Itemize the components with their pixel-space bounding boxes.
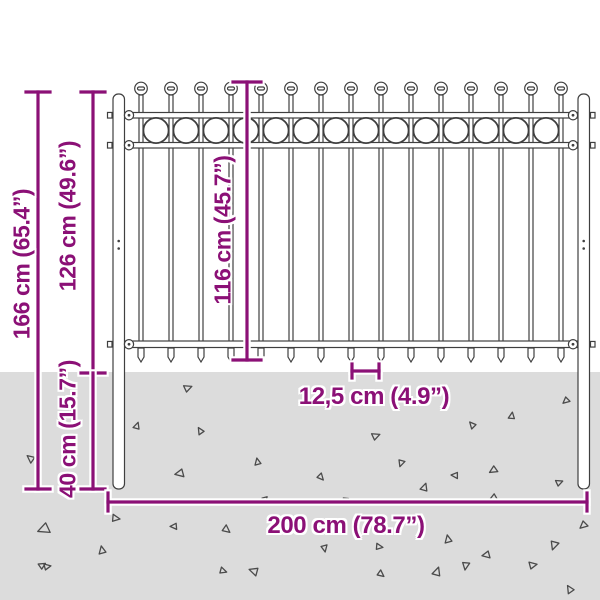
ground-triangle-mark bbox=[443, 535, 453, 546]
ground-triangle-mark bbox=[548, 538, 560, 550]
horizontal-rail bbox=[125, 113, 579, 119]
ground-triangle-mark bbox=[170, 522, 179, 531]
fence-diagram bbox=[0, 0, 600, 600]
ring-ornament bbox=[533, 118, 558, 143]
spear-tip bbox=[468, 348, 474, 362]
ring-ornament bbox=[173, 118, 198, 143]
ground-triangle-mark bbox=[182, 384, 192, 394]
spear-tip bbox=[318, 348, 324, 362]
ground-triangle-mark bbox=[507, 412, 516, 421]
ground-marks bbox=[27, 384, 588, 595]
ground-triangle-mark bbox=[580, 521, 588, 528]
ground-triangle-mark bbox=[37, 562, 45, 569]
bracket-bolt-dot bbox=[128, 343, 131, 346]
bracket-bolt-plate bbox=[591, 341, 596, 347]
ball-finial-band bbox=[558, 87, 565, 90]
spear-tip bbox=[198, 348, 204, 362]
spear-tip bbox=[378, 348, 384, 362]
ground-triangle-mark bbox=[97, 546, 107, 557]
ball-finial-band bbox=[258, 87, 265, 90]
ball-finial-band bbox=[378, 87, 385, 90]
ground-triangle-mark bbox=[370, 432, 380, 442]
spear-tip bbox=[438, 348, 444, 362]
picket-bar bbox=[559, 95, 563, 348]
picket-bar bbox=[319, 95, 323, 348]
picket-bar bbox=[469, 95, 473, 348]
horizontal-rail bbox=[125, 143, 579, 149]
ground-triangle-mark bbox=[431, 567, 443, 579]
spear-tip bbox=[528, 348, 534, 362]
ground-triangle-mark bbox=[320, 543, 329, 552]
dimension-line-picket-spacing bbox=[352, 364, 379, 378]
ground-triangle-mark bbox=[218, 566, 227, 575]
bracket-bolt-plate bbox=[591, 112, 596, 118]
fence-post-right bbox=[578, 94, 590, 489]
bracket-bolt-plate bbox=[108, 112, 113, 118]
dimension-line-width bbox=[108, 493, 587, 511]
dimension-line-below-ground-depth bbox=[81, 373, 105, 489]
spear-tip bbox=[348, 348, 354, 362]
picket-bar bbox=[379, 95, 383, 348]
ring-ornament bbox=[443, 118, 468, 143]
fence bbox=[108, 82, 596, 489]
picket-bar bbox=[409, 95, 413, 348]
dimension-label-below-ground-depth: 40 cm (15.7”) bbox=[55, 360, 82, 498]
ground-triangle-mark bbox=[566, 586, 574, 595]
picket-bar bbox=[499, 95, 503, 348]
ground-triangle-mark bbox=[132, 422, 141, 431]
ball-finial-band bbox=[498, 87, 505, 90]
fence-post-left bbox=[113, 94, 125, 489]
ball-finial-band bbox=[168, 87, 175, 90]
ring-ornament bbox=[473, 118, 498, 143]
picket-bar bbox=[349, 95, 353, 348]
spear-tip bbox=[168, 348, 174, 362]
ground-triangle-mark bbox=[197, 428, 204, 436]
ground-triangle-mark bbox=[374, 542, 383, 551]
ring-ornament bbox=[383, 118, 408, 143]
ring-ornament bbox=[503, 118, 528, 143]
bracket-bolt-dot bbox=[572, 114, 575, 117]
ground-triangle-mark bbox=[317, 473, 323, 480]
spear-tip bbox=[558, 348, 564, 362]
ball-finial-band bbox=[528, 87, 535, 90]
picket-bar bbox=[439, 95, 443, 348]
dimension-label-width: 200 cm (78.7”) bbox=[267, 512, 424, 540]
ground-triangle-mark bbox=[249, 565, 261, 577]
picket-bar bbox=[169, 95, 173, 348]
ground-triangle-mark bbox=[527, 560, 538, 570]
dimension-line-above-ground-height bbox=[81, 92, 105, 373]
horizontal-rail bbox=[125, 341, 579, 348]
ground-triangle-mark bbox=[470, 422, 476, 429]
bracket-bolt-plate bbox=[108, 142, 113, 148]
ground-triangle-mark bbox=[460, 559, 471, 570]
ring-ornament bbox=[293, 118, 318, 143]
picket-bar bbox=[259, 95, 263, 348]
dimension-label-total-height: 166 cm (65.4”) bbox=[9, 189, 36, 339]
bracket-bolt-plate bbox=[108, 341, 113, 347]
ground-triangle-mark bbox=[376, 570, 383, 578]
ball-finial-band bbox=[438, 87, 445, 90]
bracket-bolt-dot bbox=[128, 114, 131, 117]
ball-finial-band bbox=[318, 87, 325, 90]
dimension-label-picket-spacing: 12,5 cm (4.9”) bbox=[299, 383, 449, 411]
ring-ornament bbox=[203, 118, 228, 143]
ring-ornament bbox=[263, 118, 288, 143]
picket-bar bbox=[289, 95, 293, 348]
post-screw-dot bbox=[582, 247, 585, 250]
dimension-label-above-ground-height: 126 cm (49.6”) bbox=[55, 141, 82, 291]
post-screw-dot bbox=[582, 240, 585, 243]
ground-triangle-mark bbox=[490, 465, 499, 473]
ball-finial-band bbox=[138, 87, 145, 90]
ring-ornament bbox=[143, 118, 168, 143]
ring-ornament bbox=[323, 118, 348, 143]
ring-ornament bbox=[413, 118, 438, 143]
ball-finial-band bbox=[228, 87, 235, 90]
ground-triangle-mark bbox=[419, 483, 430, 493]
ground-triangle-mark bbox=[482, 550, 493, 560]
ring-ornament bbox=[353, 118, 378, 143]
bracket-bolt-plate bbox=[591, 142, 596, 148]
spear-tip bbox=[498, 348, 504, 362]
ball-finial-band bbox=[468, 87, 475, 90]
spear-tip bbox=[408, 348, 414, 362]
dimension-label-picket-height: 116 cm (45.7”) bbox=[210, 155, 237, 304]
picket-bar bbox=[529, 95, 533, 348]
ground-triangle-mark bbox=[451, 471, 460, 480]
ground-triangle-mark bbox=[175, 467, 187, 479]
ball-finial-band bbox=[198, 87, 205, 90]
ground-triangle-mark bbox=[554, 479, 563, 487]
spear-tip bbox=[288, 348, 294, 362]
spear-tip bbox=[138, 348, 144, 362]
ground-triangle-mark bbox=[253, 458, 262, 467]
bracket-bolt-dot bbox=[572, 144, 575, 147]
ball-finial-band bbox=[288, 87, 295, 90]
post-screw-dot bbox=[117, 247, 120, 250]
ball-finial-band bbox=[408, 87, 415, 90]
bracket-bolt-dot bbox=[572, 343, 575, 346]
picket-bar bbox=[139, 95, 143, 348]
ground-triangle-mark bbox=[38, 521, 53, 535]
ground-triangle-mark bbox=[563, 397, 570, 403]
picket-bar bbox=[199, 95, 203, 348]
diagram-canvas: 166 cm (65.4”) 126 cm (49.6”) 40 cm (15.… bbox=[0, 0, 600, 600]
post-screw-dot bbox=[117, 240, 120, 243]
ball-finial-band bbox=[348, 87, 355, 90]
ground-triangle-mark bbox=[221, 525, 229, 534]
bracket-bolt-dot bbox=[128, 144, 131, 147]
ground-triangle-mark bbox=[397, 458, 406, 467]
